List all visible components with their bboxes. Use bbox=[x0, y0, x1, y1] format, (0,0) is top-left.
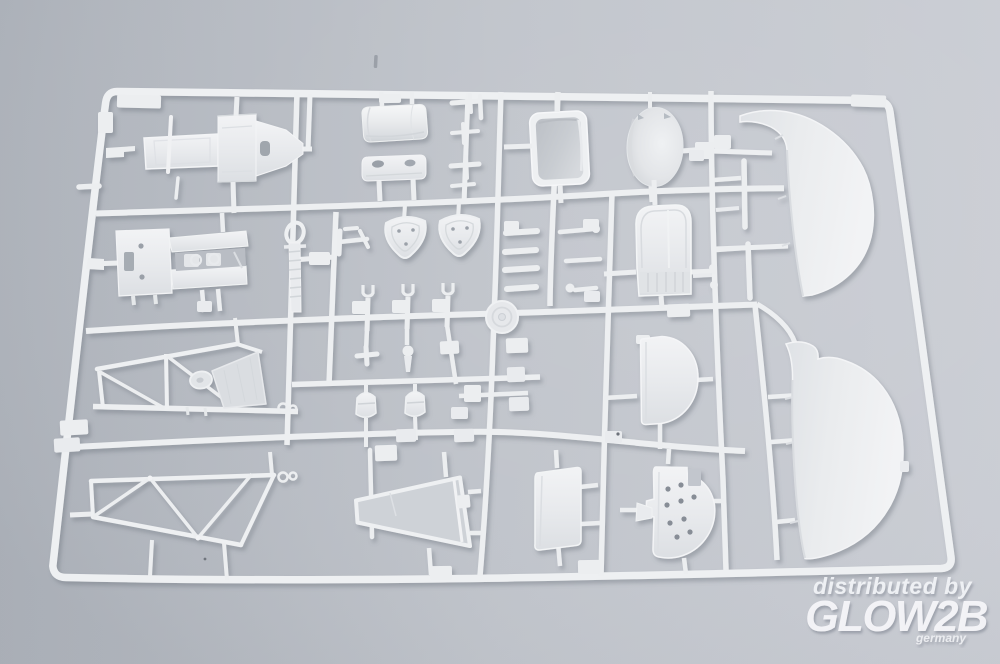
svg-text:germany: germany bbox=[915, 631, 967, 645]
